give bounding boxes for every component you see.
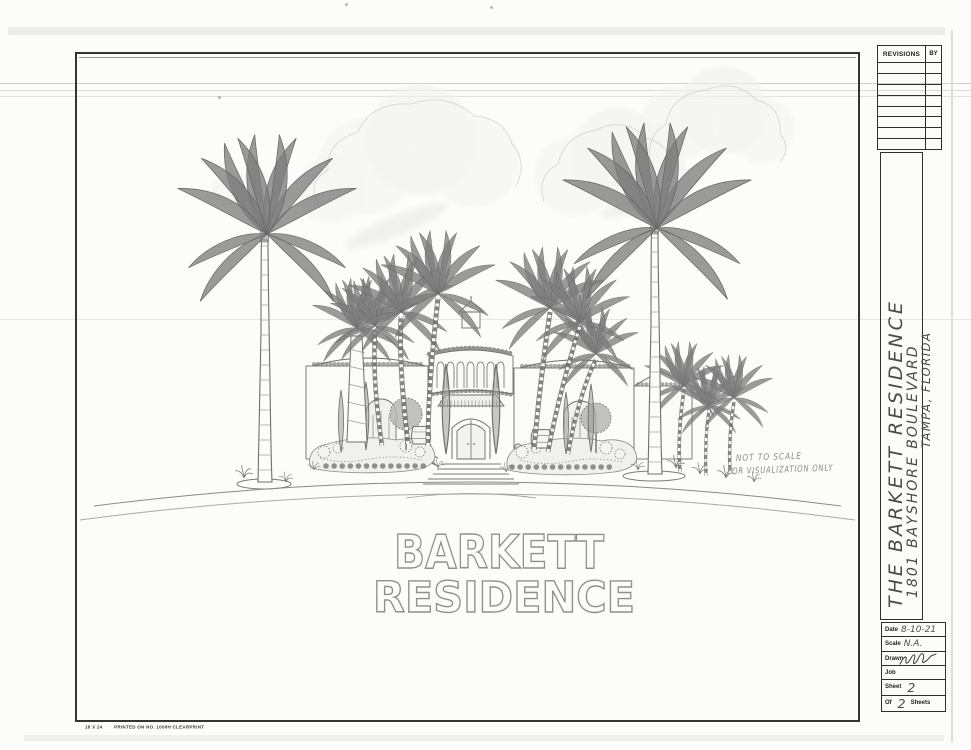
- revisions-empty-row: [878, 63, 941, 74]
- of-label: Of: [885, 700, 892, 706]
- date-row: Date 8-10-21: [882, 623, 945, 637]
- date-value: 8-10-21: [901, 625, 936, 635]
- sheet-row: Sheet 2: [882, 680, 945, 696]
- paper-brand-text: PRINTED ON NO. 1000H CLEARPRINT: [114, 725, 204, 730]
- job-label: Job: [885, 670, 896, 676]
- scale-row: Scale N.A.: [882, 637, 945, 651]
- revisions-empty-row: [878, 96, 941, 107]
- job-row: Job: [882, 666, 945, 680]
- drawn-signature: [898, 652, 940, 667]
- project-name-vertical: THE BARKETT RESIDENCE: [885, 299, 907, 608]
- paper-edge-right: [951, 30, 953, 742]
- of-row: Of 2 Sheets: [882, 696, 945, 711]
- revisions-header-row: REVISIONS BY: [878, 46, 941, 63]
- revisions-empty-row: [878, 117, 941, 128]
- note-line1: NOT TO SCALE: [736, 452, 802, 464]
- paper-size-print: 18 X 24: [85, 725, 102, 730]
- date-label: Date: [885, 627, 898, 633]
- sheet-value: 2: [907, 680, 915, 695]
- revisions-empty-row: [878, 85, 941, 96]
- not-to-scale-note: NOT TO SCALE FOR VISUALIZATION ONLY: [727, 451, 834, 478]
- sheet-label: Sheet: [885, 684, 901, 690]
- scale-label: Scale: [885, 641, 901, 647]
- drawing-title-line2: RESIDENCE: [373, 573, 635, 623]
- drawn-row: Drawn: [882, 652, 945, 666]
- pencil-rendering: NOT TO SCALE FOR VISUALIZATION ONLY BARK…: [76, 54, 859, 720]
- revisions-header: REVISIONS: [878, 51, 925, 58]
- scan-smudge-band: [8, 27, 945, 35]
- revisions-empty-row: [878, 107, 941, 118]
- sheet-info-table: Date 8-10-21 Scale N.A. Drawn Job Sheet …: [881, 622, 946, 712]
- drawing-title-line1: BARKETT: [394, 525, 605, 579]
- circular-driveway: [80, 482, 855, 520]
- revisions-empty-row: [878, 139, 941, 149]
- drawing-title: BARKETT RESIDENCE: [373, 525, 635, 623]
- of-value: 2: [898, 696, 906, 711]
- revisions-empty-row: [878, 128, 941, 139]
- revisions-empty-row: [878, 74, 941, 85]
- by-header: BY: [925, 46, 941, 62]
- paper-brand-print: 18 X 24PRINTED ON NO. 1000H CLEARPRINT: [85, 725, 204, 730]
- note-line2: FOR VISUALIZATION ONLY: [727, 464, 834, 478]
- project-city-vertical: TAMPA, FLORIDA: [919, 332, 933, 448]
- scan-speck: [345, 3, 348, 6]
- scanned-architectural-sheet: NOT TO SCALE FOR VISUALIZATION ONLY BARK…: [0, 0, 971, 750]
- scan-speck: [490, 6, 493, 9]
- sheets-suffix: Sheets: [911, 700, 931, 706]
- scale-value: N.A.: [904, 639, 923, 649]
- revisions-table: REVISIONS BY: [877, 45, 942, 150]
- paper-edge-bottom: [24, 735, 944, 741]
